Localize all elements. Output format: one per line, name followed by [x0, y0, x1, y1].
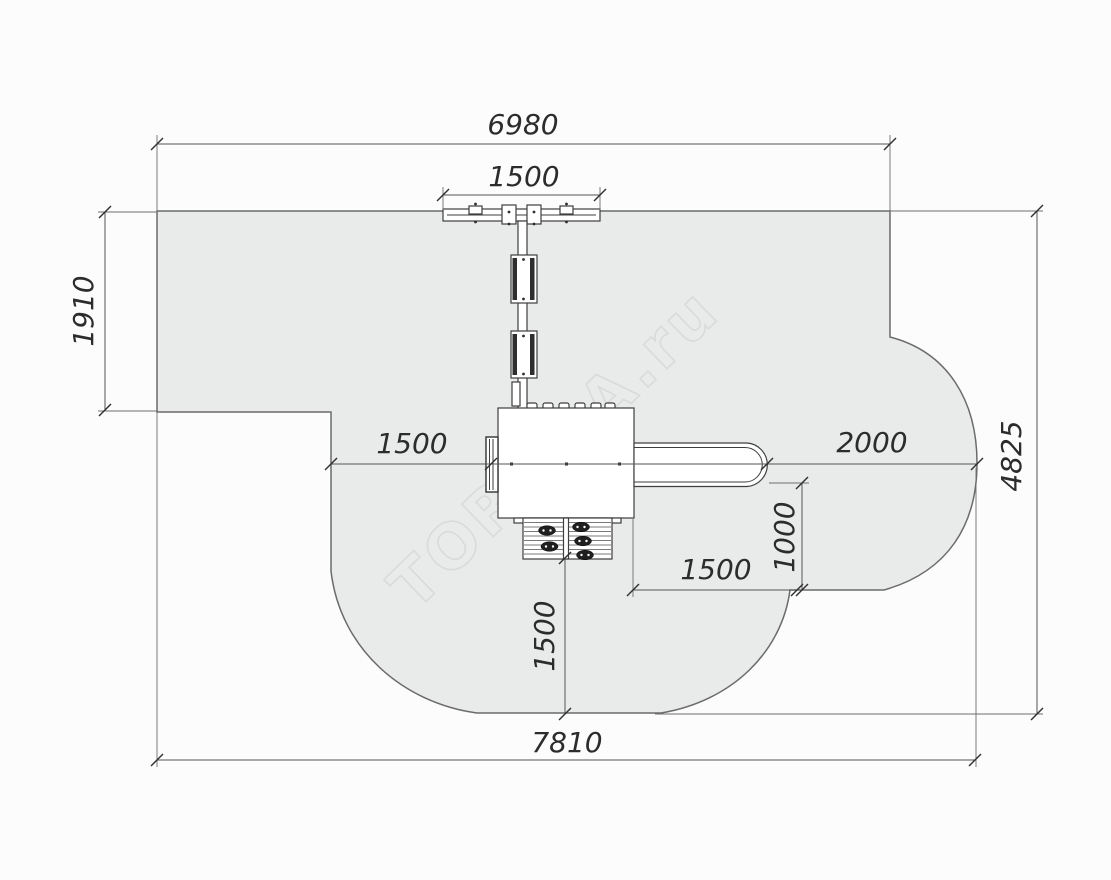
- dim-top-width: 6980: [487, 108, 558, 141]
- dim-slide-clearance: 2000: [836, 426, 907, 459]
- dim-right-height: 4825: [995, 420, 1028, 491]
- dim-bottom-width: 7810: [531, 726, 602, 759]
- dim-left-clearance: 1500: [376, 427, 447, 460]
- dim-exit-depth: 1000: [768, 501, 801, 572]
- plan-drawing: TORUDA.ru: [0, 0, 1111, 880]
- ladder-segment-upper: [511, 255, 537, 303]
- climbing-ramp: [523, 518, 612, 560]
- ladder-segment-lower: [511, 331, 537, 378]
- dim-lower-clearance: 1500: [528, 600, 561, 671]
- dim-exit-width: 1500: [680, 553, 751, 586]
- slide: [634, 443, 767, 487]
- connecting-beam: [518, 221, 527, 409]
- plan-svg: TORUDA.ru: [0, 0, 1111, 880]
- beam-bracket: [512, 382, 520, 406]
- dim-beam-width: 1500: [488, 160, 559, 193]
- platform: [498, 403, 634, 523]
- dim-upper-left-height: 1910: [67, 275, 100, 346]
